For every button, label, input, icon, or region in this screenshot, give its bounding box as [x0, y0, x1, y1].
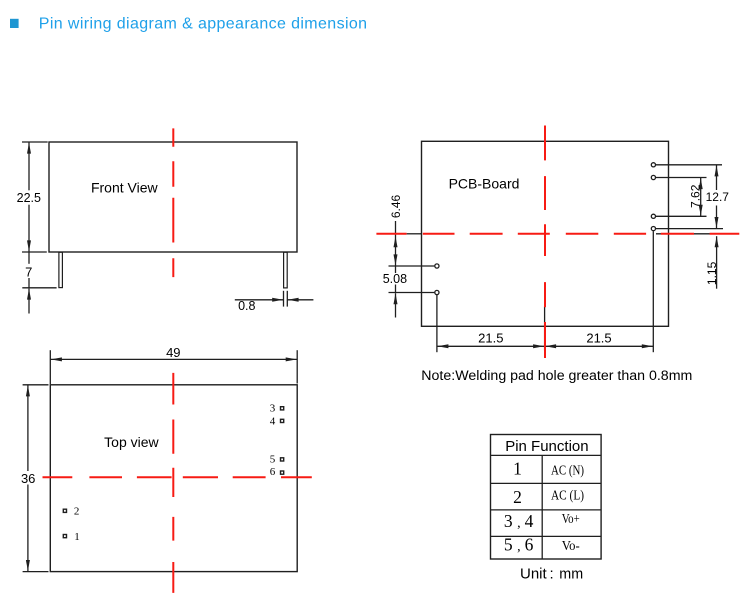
svg-text:mm: mm	[559, 567, 583, 583]
svg-text:AC (L): AC (L)	[551, 489, 584, 504]
svg-text:3: 3	[270, 402, 276, 414]
svg-text:Top view: Top view	[104, 434, 159, 450]
svg-text:21.5: 21.5	[478, 331, 503, 346]
svg-text:Vo-: Vo-	[562, 539, 580, 554]
svg-text:1.15: 1.15	[705, 261, 719, 285]
svg-text:12.7: 12.7	[706, 190, 730, 204]
svg-text:22.5: 22.5	[17, 191, 41, 205]
svg-text:6: 6	[270, 466, 276, 478]
svg-text:7.62: 7.62	[688, 184, 702, 208]
svg-text:4: 4	[270, 415, 276, 427]
svg-text:7: 7	[25, 265, 32, 280]
svg-text:Front View: Front View	[91, 180, 159, 196]
svg-text:6.46: 6.46	[389, 194, 403, 218]
svg-text:0.8: 0.8	[238, 299, 255, 313]
svg-text:2: 2	[513, 487, 522, 507]
svg-text:21.5: 21.5	[586, 331, 611, 346]
svg-text:5: 5	[270, 453, 276, 465]
svg-text:1: 1	[74, 531, 80, 543]
svg-text:PCB-Board: PCB-Board	[449, 176, 520, 192]
svg-text:2: 2	[74, 506, 80, 518]
svg-text:Unit: Unit	[520, 565, 548, 582]
svg-text:36: 36	[21, 471, 35, 486]
svg-text:Pin Function: Pin Function	[505, 438, 588, 455]
svg-text:Note:Welding pad hole greater: Note:Welding pad hole greater than 0.8mm	[421, 368, 692, 384]
svg-text:1: 1	[513, 458, 522, 478]
svg-text:Vo+: Vo+	[562, 512, 580, 527]
svg-text:AC (N): AC (N)	[551, 464, 584, 479]
svg-text:Pin wiring diagram & appearanc: Pin wiring diagram & appearance dimensio…	[39, 16, 368, 33]
svg-text::: :	[550, 565, 554, 582]
svg-text:49: 49	[166, 345, 180, 360]
svg-text:5.08: 5.08	[383, 272, 407, 286]
